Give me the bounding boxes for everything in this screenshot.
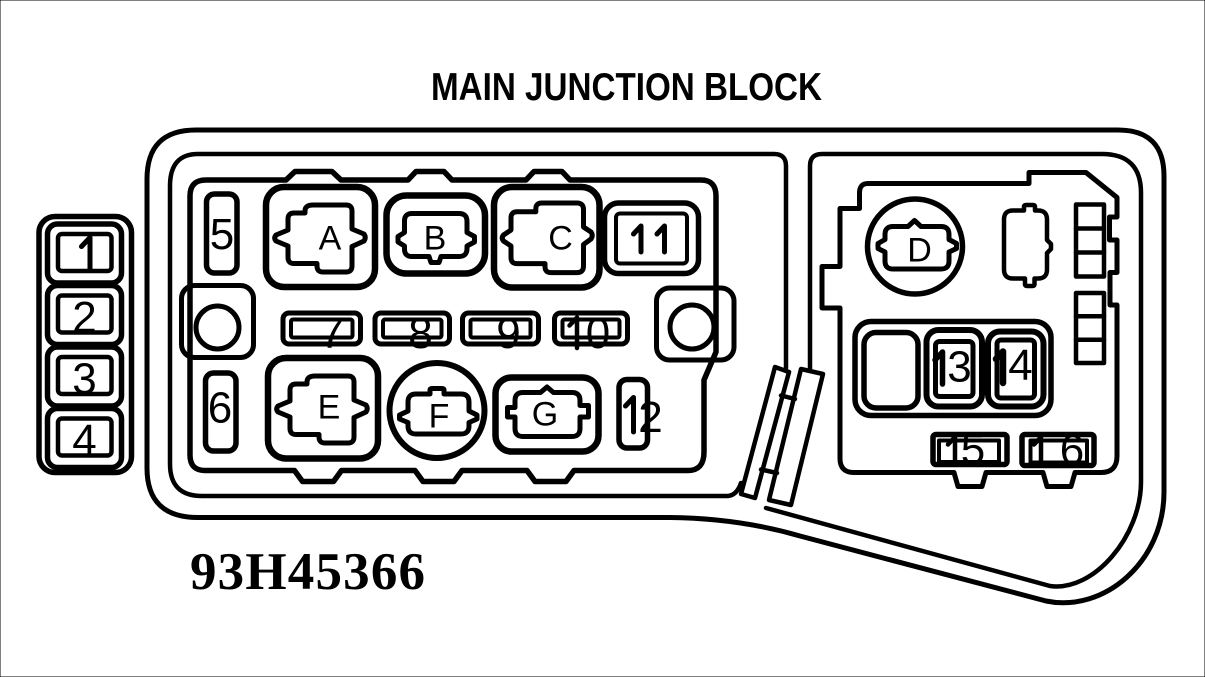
svg-text:3: 3 xyxy=(947,343,971,392)
svg-text:6: 6 xyxy=(208,384,232,433)
svg-text:2: 2 xyxy=(72,293,96,342)
svg-text:2: 2 xyxy=(638,393,662,442)
svg-text:5: 5 xyxy=(961,425,985,474)
svg-text:93H45366: 93H45366 xyxy=(190,543,425,601)
svg-text:5: 5 xyxy=(210,210,234,259)
svg-text:C: C xyxy=(548,220,573,258)
svg-text:4: 4 xyxy=(72,416,96,465)
svg-text:D: D xyxy=(907,232,932,270)
svg-text:7: 7 xyxy=(320,309,344,358)
svg-text:9: 9 xyxy=(496,309,520,358)
svg-text:0: 0 xyxy=(586,309,610,358)
svg-text:G: G xyxy=(532,396,558,434)
svg-text:A: A xyxy=(319,220,342,258)
svg-text:8: 8 xyxy=(408,309,432,358)
svg-text:E: E xyxy=(318,389,341,427)
svg-text:6: 6 xyxy=(1060,426,1084,475)
svg-text:B: B xyxy=(424,220,447,258)
svg-text:MAIN JUNCTION BLOCK: MAIN JUNCTION BLOCK xyxy=(431,66,822,109)
svg-text:4: 4 xyxy=(1008,341,1032,390)
svg-text:F: F xyxy=(429,398,450,436)
svg-text:3: 3 xyxy=(72,355,96,404)
